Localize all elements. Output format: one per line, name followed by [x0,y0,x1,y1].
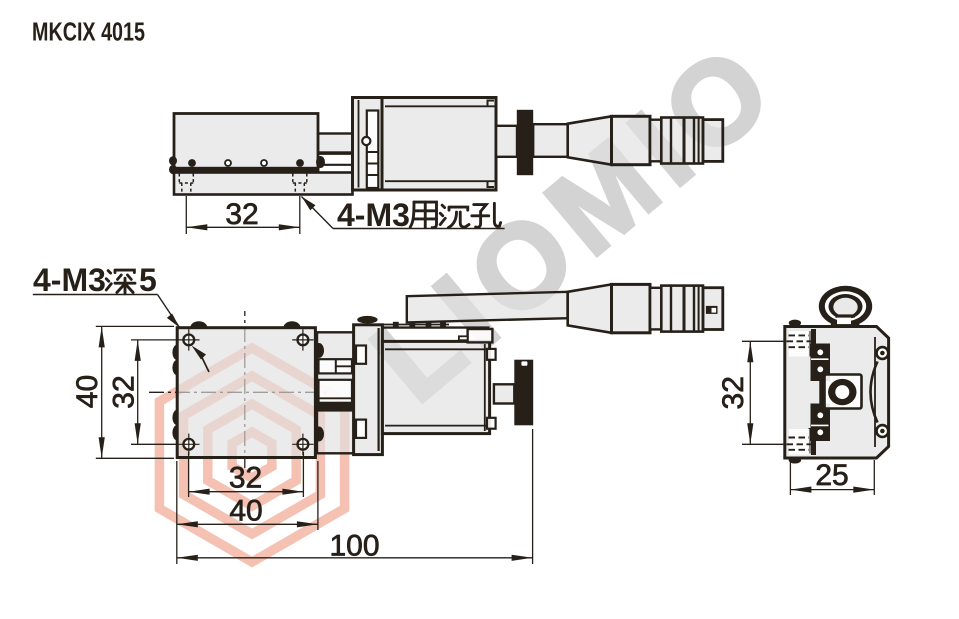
svg-text:32: 32 [229,462,262,495]
svg-text:40: 40 [71,375,104,408]
svg-text:5: 5 [139,262,157,298]
svg-text:32: 32 [225,198,258,231]
svg-text:25: 25 [815,459,848,492]
svg-text:4-M3: 4-M3 [337,197,410,233]
svg-text:32: 32 [108,375,141,408]
svg-text:MKCIX 4015: MKCIX 4015 [32,19,145,47]
svg-text:32: 32 [717,376,750,409]
svg-text:100: 100 [329,530,379,563]
svg-text:40: 40 [229,495,262,528]
svg-text:4-M3: 4-M3 [33,262,106,298]
